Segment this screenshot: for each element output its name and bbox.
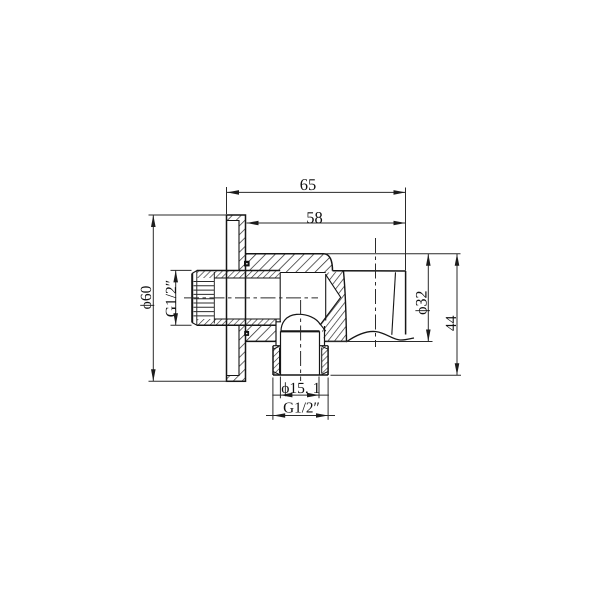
- svg-text:65: 65: [300, 175, 317, 194]
- svg-text:ϕ32: ϕ32: [413, 290, 430, 314]
- svg-text:ϕ15. 1: ϕ15. 1: [281, 380, 320, 397]
- svg-text:58: 58: [306, 208, 323, 227]
- svg-text:G1/2″: G1/2″: [163, 280, 180, 317]
- svg-text:ϕ60: ϕ60: [138, 285, 155, 309]
- svg-text:44: 44: [443, 315, 460, 331]
- svg-text:G1/2″: G1/2″: [283, 399, 320, 416]
